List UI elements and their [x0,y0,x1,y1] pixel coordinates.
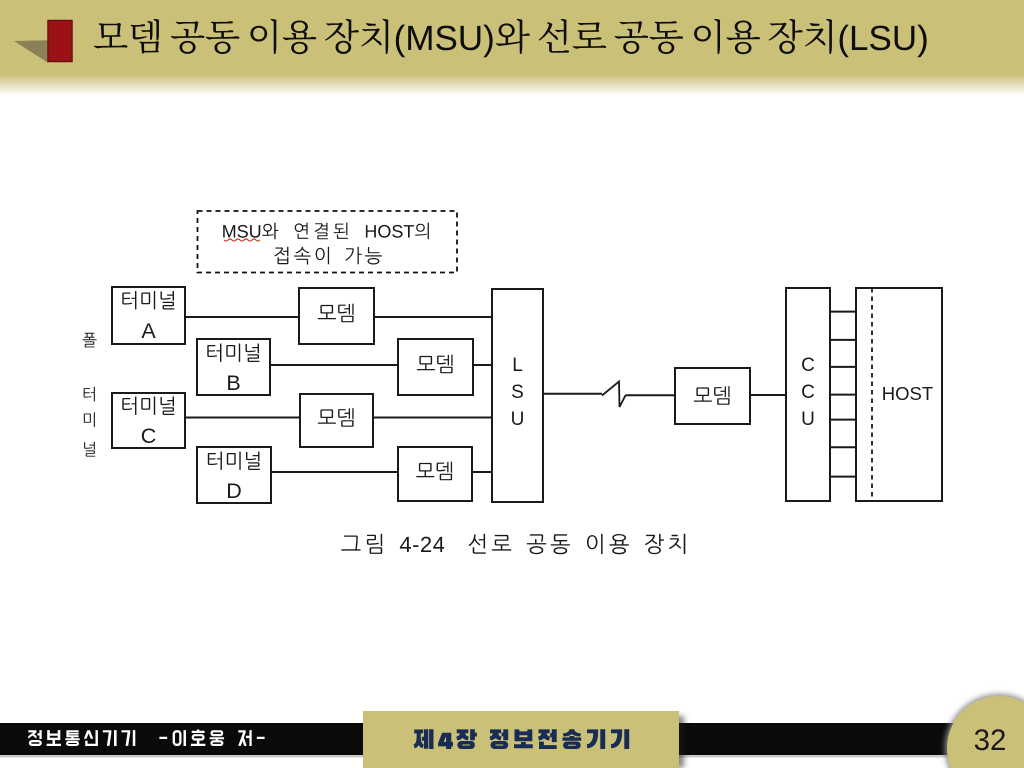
svg-text:C: C [801,355,815,376]
svg-text:D: D [226,479,242,503]
svg-text:A: A [141,319,156,343]
svg-text:B: B [226,371,240,395]
svg-text:U: U [801,409,815,430]
svg-text:C: C [141,424,157,448]
svg-text:S: S [511,382,524,403]
svg-text:L: L [512,355,523,376]
svg-text:32: 32 [974,724,1007,757]
svg-text:U: U [511,409,525,430]
svg-text:C: C [801,382,815,403]
svg-text:HOST: HOST [882,383,933,404]
